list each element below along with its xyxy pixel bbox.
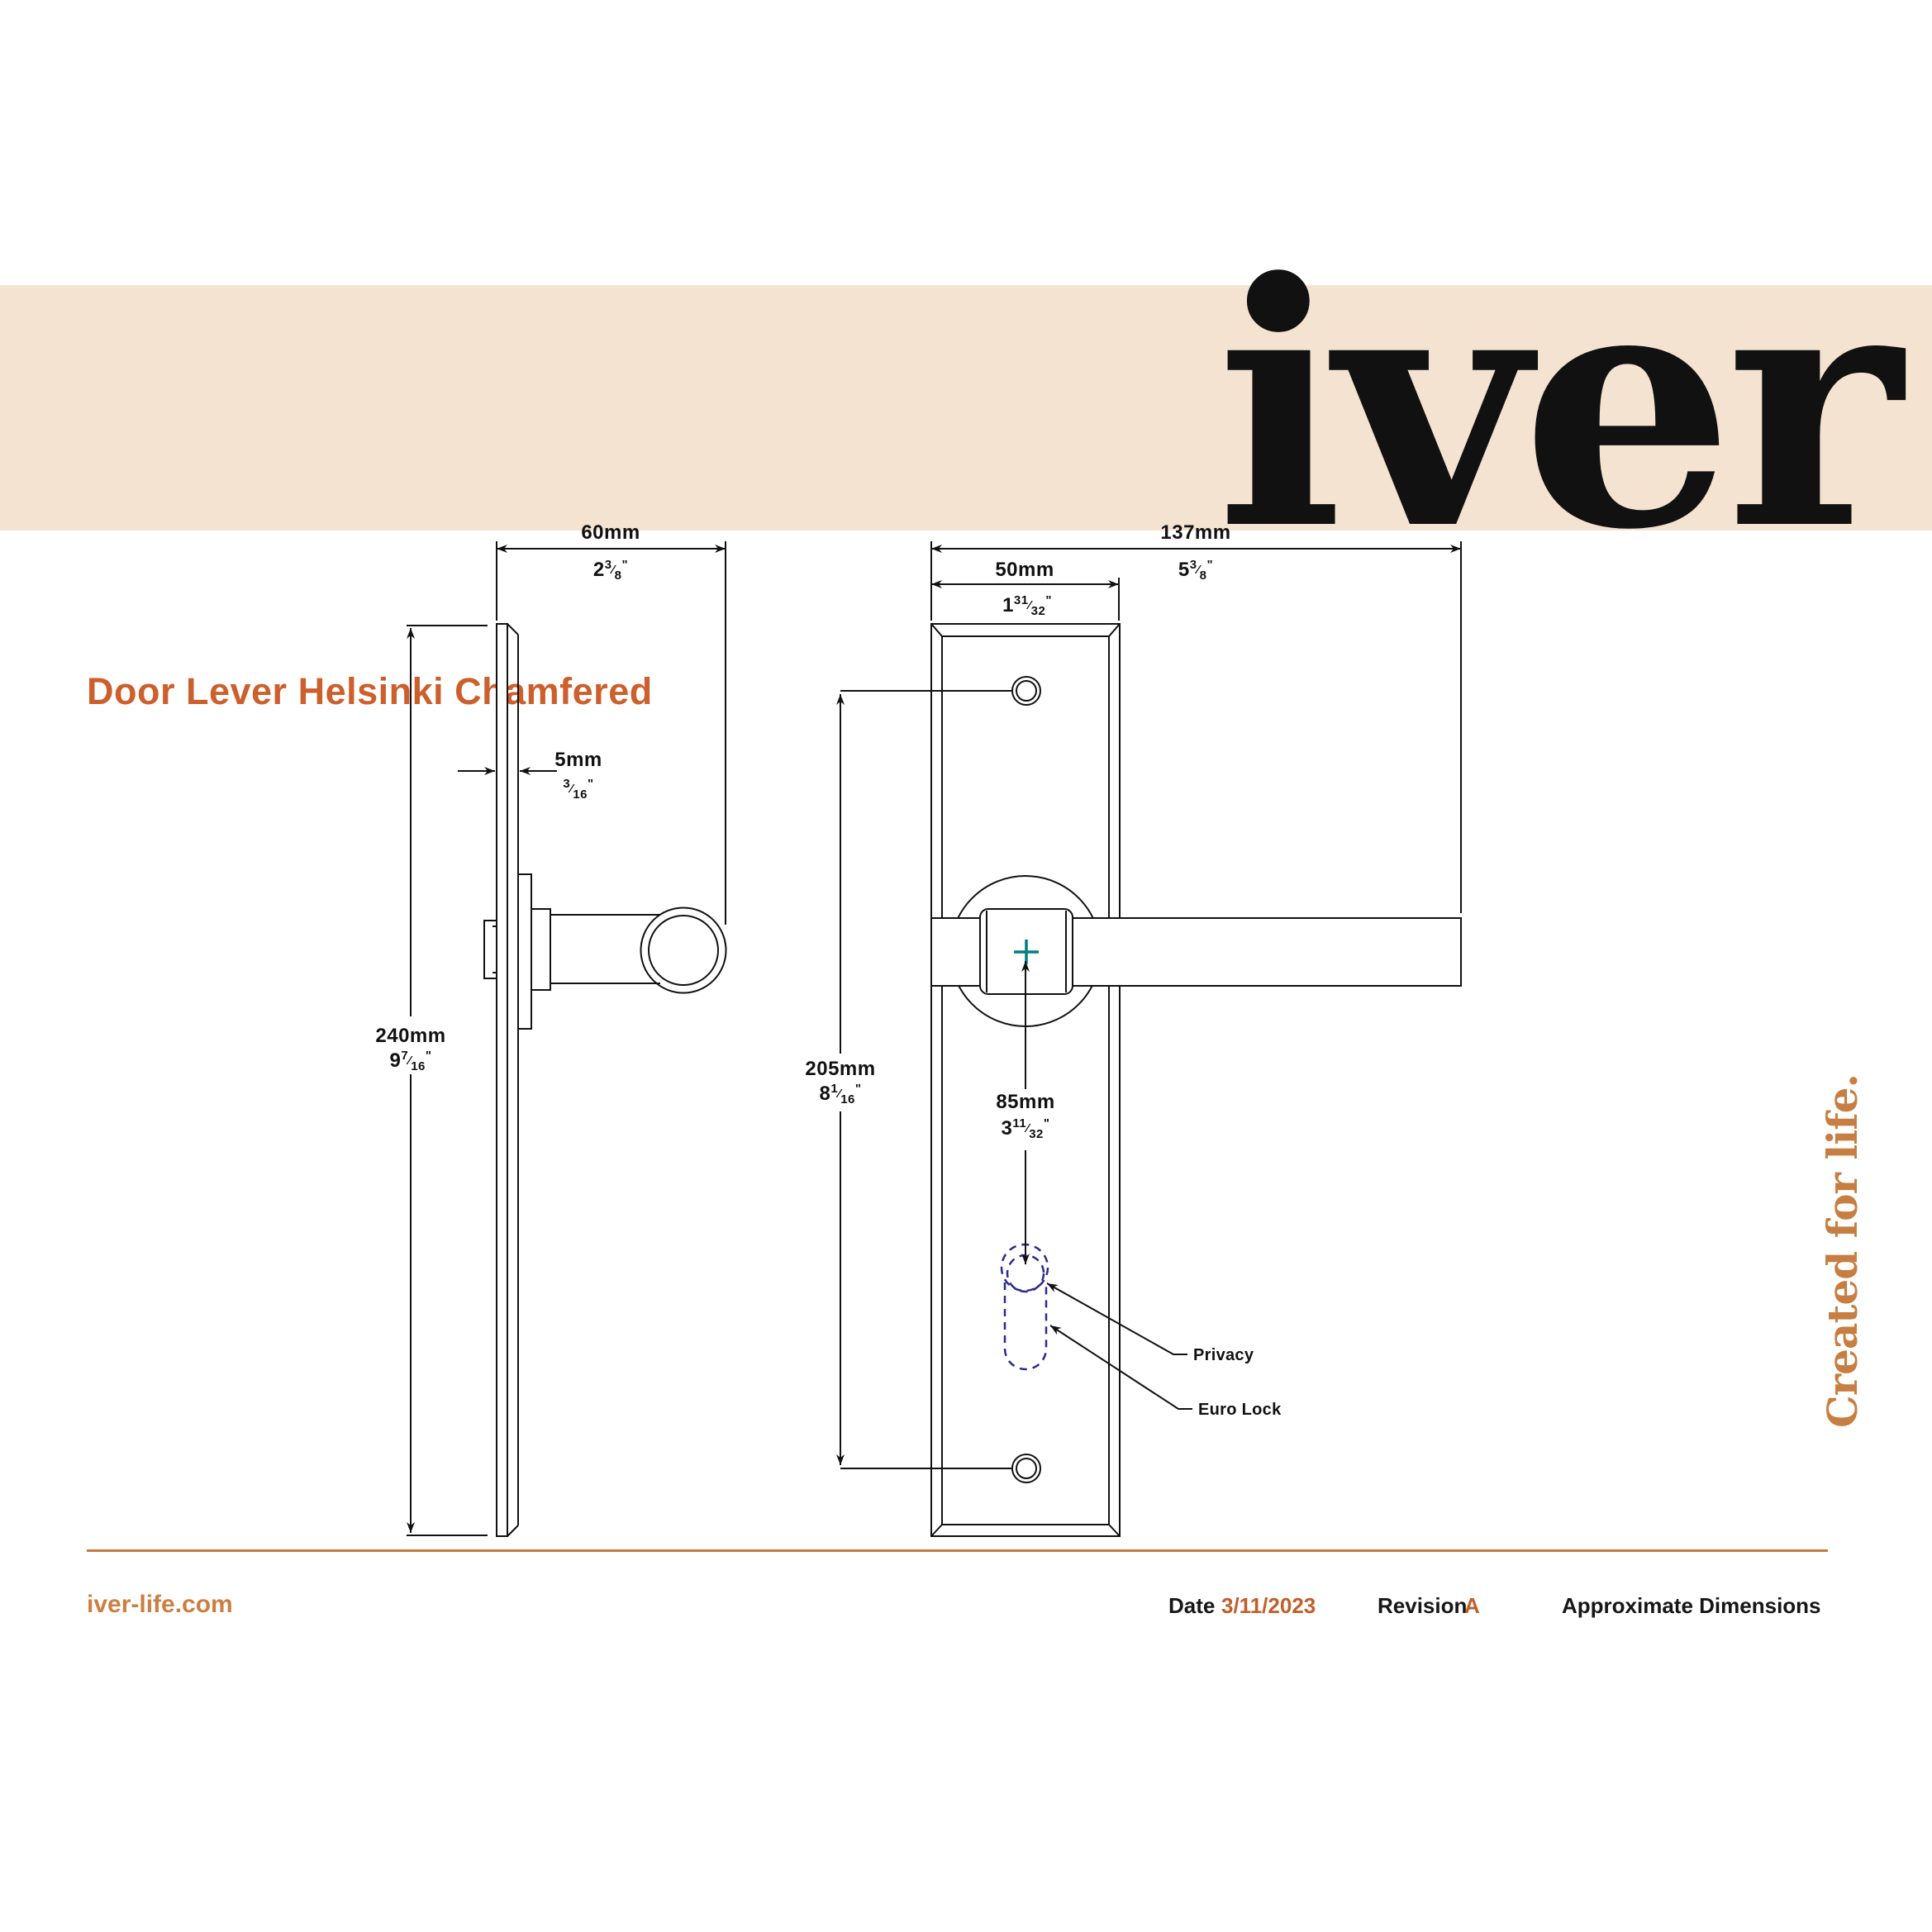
revision-value: A <box>1464 1593 1480 1619</box>
datasheet-page: Door Lever Helsinki Chamfered iver <box>0 0 1932 1932</box>
dim-60-inch: 23⁄8" <box>593 558 628 583</box>
dim-5-inch: 3⁄16" <box>563 777 593 802</box>
dim-137-inch: 53⁄8" <box>1178 558 1213 583</box>
side-view <box>484 624 726 1536</box>
dim-85-mm: 85mm <box>996 1091 1054 1113</box>
date-label: Date <box>1168 1593 1215 1619</box>
side-lever-grip-inner <box>649 916 718 985</box>
side-plate-back <box>497 624 507 1536</box>
approximate-dimensions-note: Approximate Dimensions <box>1562 1593 1821 1619</box>
dim-205-mm: 205mm <box>805 1058 875 1080</box>
tagline-vertical: Created for life. <box>1818 1130 1867 1428</box>
side-rose <box>518 874 531 1029</box>
dim-137-mm: 137mm <box>1160 521 1230 544</box>
footer-divider <box>87 1549 1828 1552</box>
dim-5-mm: 5mm <box>554 749 602 771</box>
revision-label: Revision <box>1378 1593 1467 1619</box>
side-lever-neck <box>531 909 550 990</box>
technical-drawing: iver <box>0 0 1932 1932</box>
date-value: 3/11/2023 <box>1221 1593 1316 1619</box>
euro-lock-label: Euro Lock <box>1198 1401 1282 1419</box>
dim-240-mm: 240mm <box>375 1025 445 1047</box>
side-rear-tab <box>484 921 497 978</box>
website-link[interactable]: iver-life.com <box>87 1591 233 1619</box>
dim-50-inch: 131⁄32" <box>1002 593 1052 618</box>
dim-205-inch: 81⁄16" <box>819 1082 861 1106</box>
dim-240-inch: 97⁄16" <box>389 1049 431 1073</box>
iver-logo: iver <box>1216 210 1909 603</box>
front-view <box>931 624 1461 1536</box>
dim-50-mm: 50mm <box>995 559 1054 581</box>
side-plate-chamfer-top <box>507 624 518 635</box>
side-lever-grip-outer <box>641 908 726 993</box>
dim-60-mm: 60mm <box>581 521 640 544</box>
side-view-dimensions <box>407 541 726 1535</box>
side-plate-chamfer-bottom <box>507 1525 518 1536</box>
privacy-label: Privacy <box>1193 1346 1254 1364</box>
